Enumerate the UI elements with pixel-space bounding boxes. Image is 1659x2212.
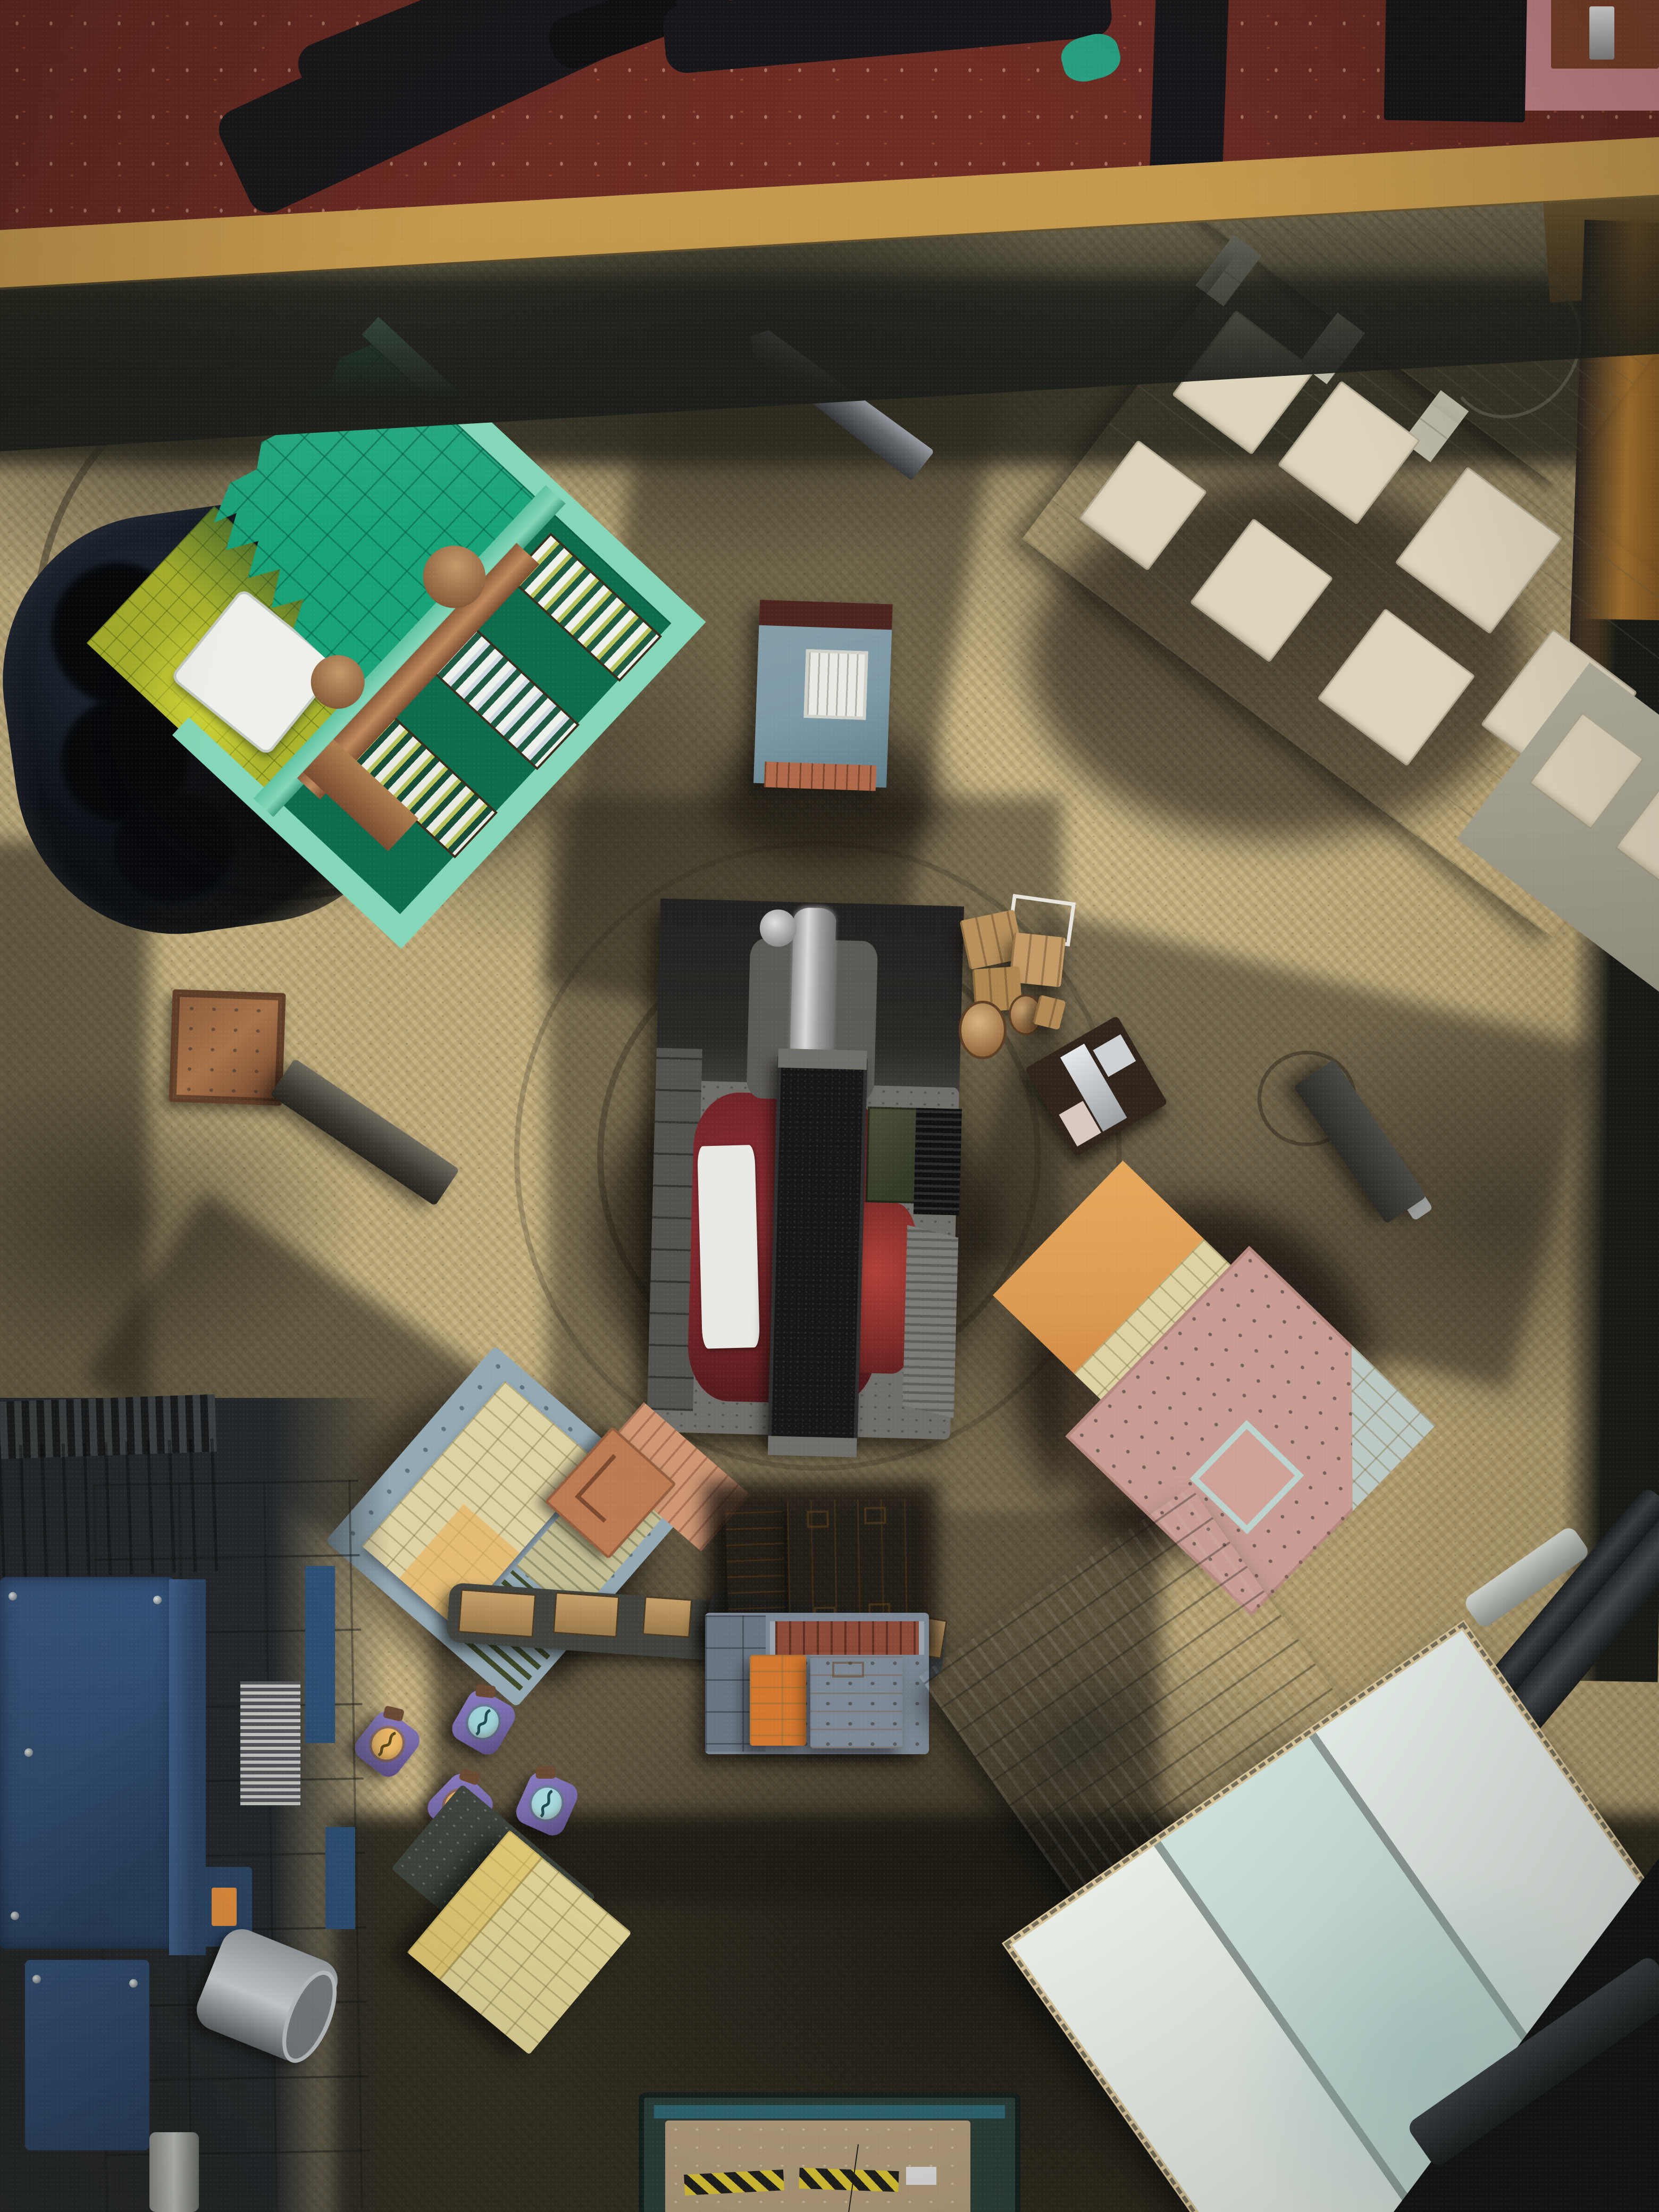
blue-strip	[305, 1566, 335, 1743]
hazard-stripe-bar	[799, 2168, 899, 2192]
orange-crate	[725, 1504, 786, 1626]
screw-icon	[24, 1748, 33, 1757]
gantry-cap-bottom	[768, 1436, 857, 1457]
slate-hatch-shack	[753, 599, 892, 787]
barricade-plank	[553, 1592, 620, 1638]
blue-strip	[325, 1827, 355, 1929]
chair-post	[1150, 0, 1230, 189]
machine-blue-lower-panel	[25, 1960, 149, 2150]
crate-tab	[807, 1511, 829, 1528]
orange-red-crate	[750, 1655, 806, 1745]
crate-tab	[832, 1662, 864, 1678]
kit-window	[1078, 440, 1207, 571]
barrel-top	[959, 1001, 1007, 1059]
shack-red-edge	[759, 599, 892, 630]
orange-crate-pair-top	[727, 1499, 912, 1630]
white-label	[698, 1145, 760, 1349]
shack-pallet-base	[764, 761, 876, 791]
tank-platform	[647, 899, 964, 1439]
chair-block	[1384, 0, 1528, 123]
barricade-left	[446, 1582, 728, 1661]
kit-window	[1277, 380, 1421, 525]
crack-icon	[523, 1780, 571, 1828]
machine-blue-panel	[0, 1577, 174, 1949]
wood-crate-small	[1033, 995, 1067, 1030]
tan-crate	[787, 1498, 914, 1631]
riveted-deck	[705, 1613, 929, 1754]
kit-window	[1189, 518, 1333, 663]
small-silver-pipe	[149, 2132, 199, 2212]
tabletop-photo	[0, 0, 1659, 2212]
screw-icon	[129, 1979, 138, 1988]
pit-floor	[665, 2121, 970, 2212]
orange-label	[212, 1888, 237, 1926]
kit-window	[1317, 608, 1476, 767]
hatch-rivets	[178, 998, 277, 1096]
screw-icon	[153, 1596, 162, 1604]
kit-window	[1529, 712, 1644, 829]
screw-icon	[32, 1975, 41, 1983]
terracotta-groove	[575, 1454, 642, 1523]
ribbed-radiator	[240, 1681, 300, 1805]
wooden-crate-cluster	[949, 898, 1074, 1064]
crack-icon	[459, 1697, 508, 1747]
mesh-gantry	[768, 1057, 867, 1450]
copper-hatch	[169, 989, 286, 1105]
barricade-plank	[458, 1589, 537, 1638]
gantry-cap-top	[778, 1049, 867, 1070]
barricade-plank	[642, 1596, 693, 1638]
orange-crate	[810, 1652, 902, 1748]
screw-icon	[9, 1592, 17, 1601]
orange-pink-building	[1037, 1221, 1360, 1544]
screw-icon	[11, 1912, 19, 1920]
crate-tab	[864, 1507, 886, 1524]
metal-latch	[1589, 6, 1614, 60]
ribbed-black-panel	[914, 1108, 962, 1216]
pit-white-fragment	[906, 2167, 936, 2185]
brick-red-wall	[770, 1621, 924, 1655]
hazard-pit	[639, 2092, 1020, 2212]
stone-steps	[902, 1225, 959, 1418]
kit-window	[1395, 466, 1563, 634]
pit-blue-lip	[654, 2105, 1005, 2118]
white-roof-hatch	[803, 649, 868, 719]
chair-seat-bar	[661, 0, 1113, 74]
